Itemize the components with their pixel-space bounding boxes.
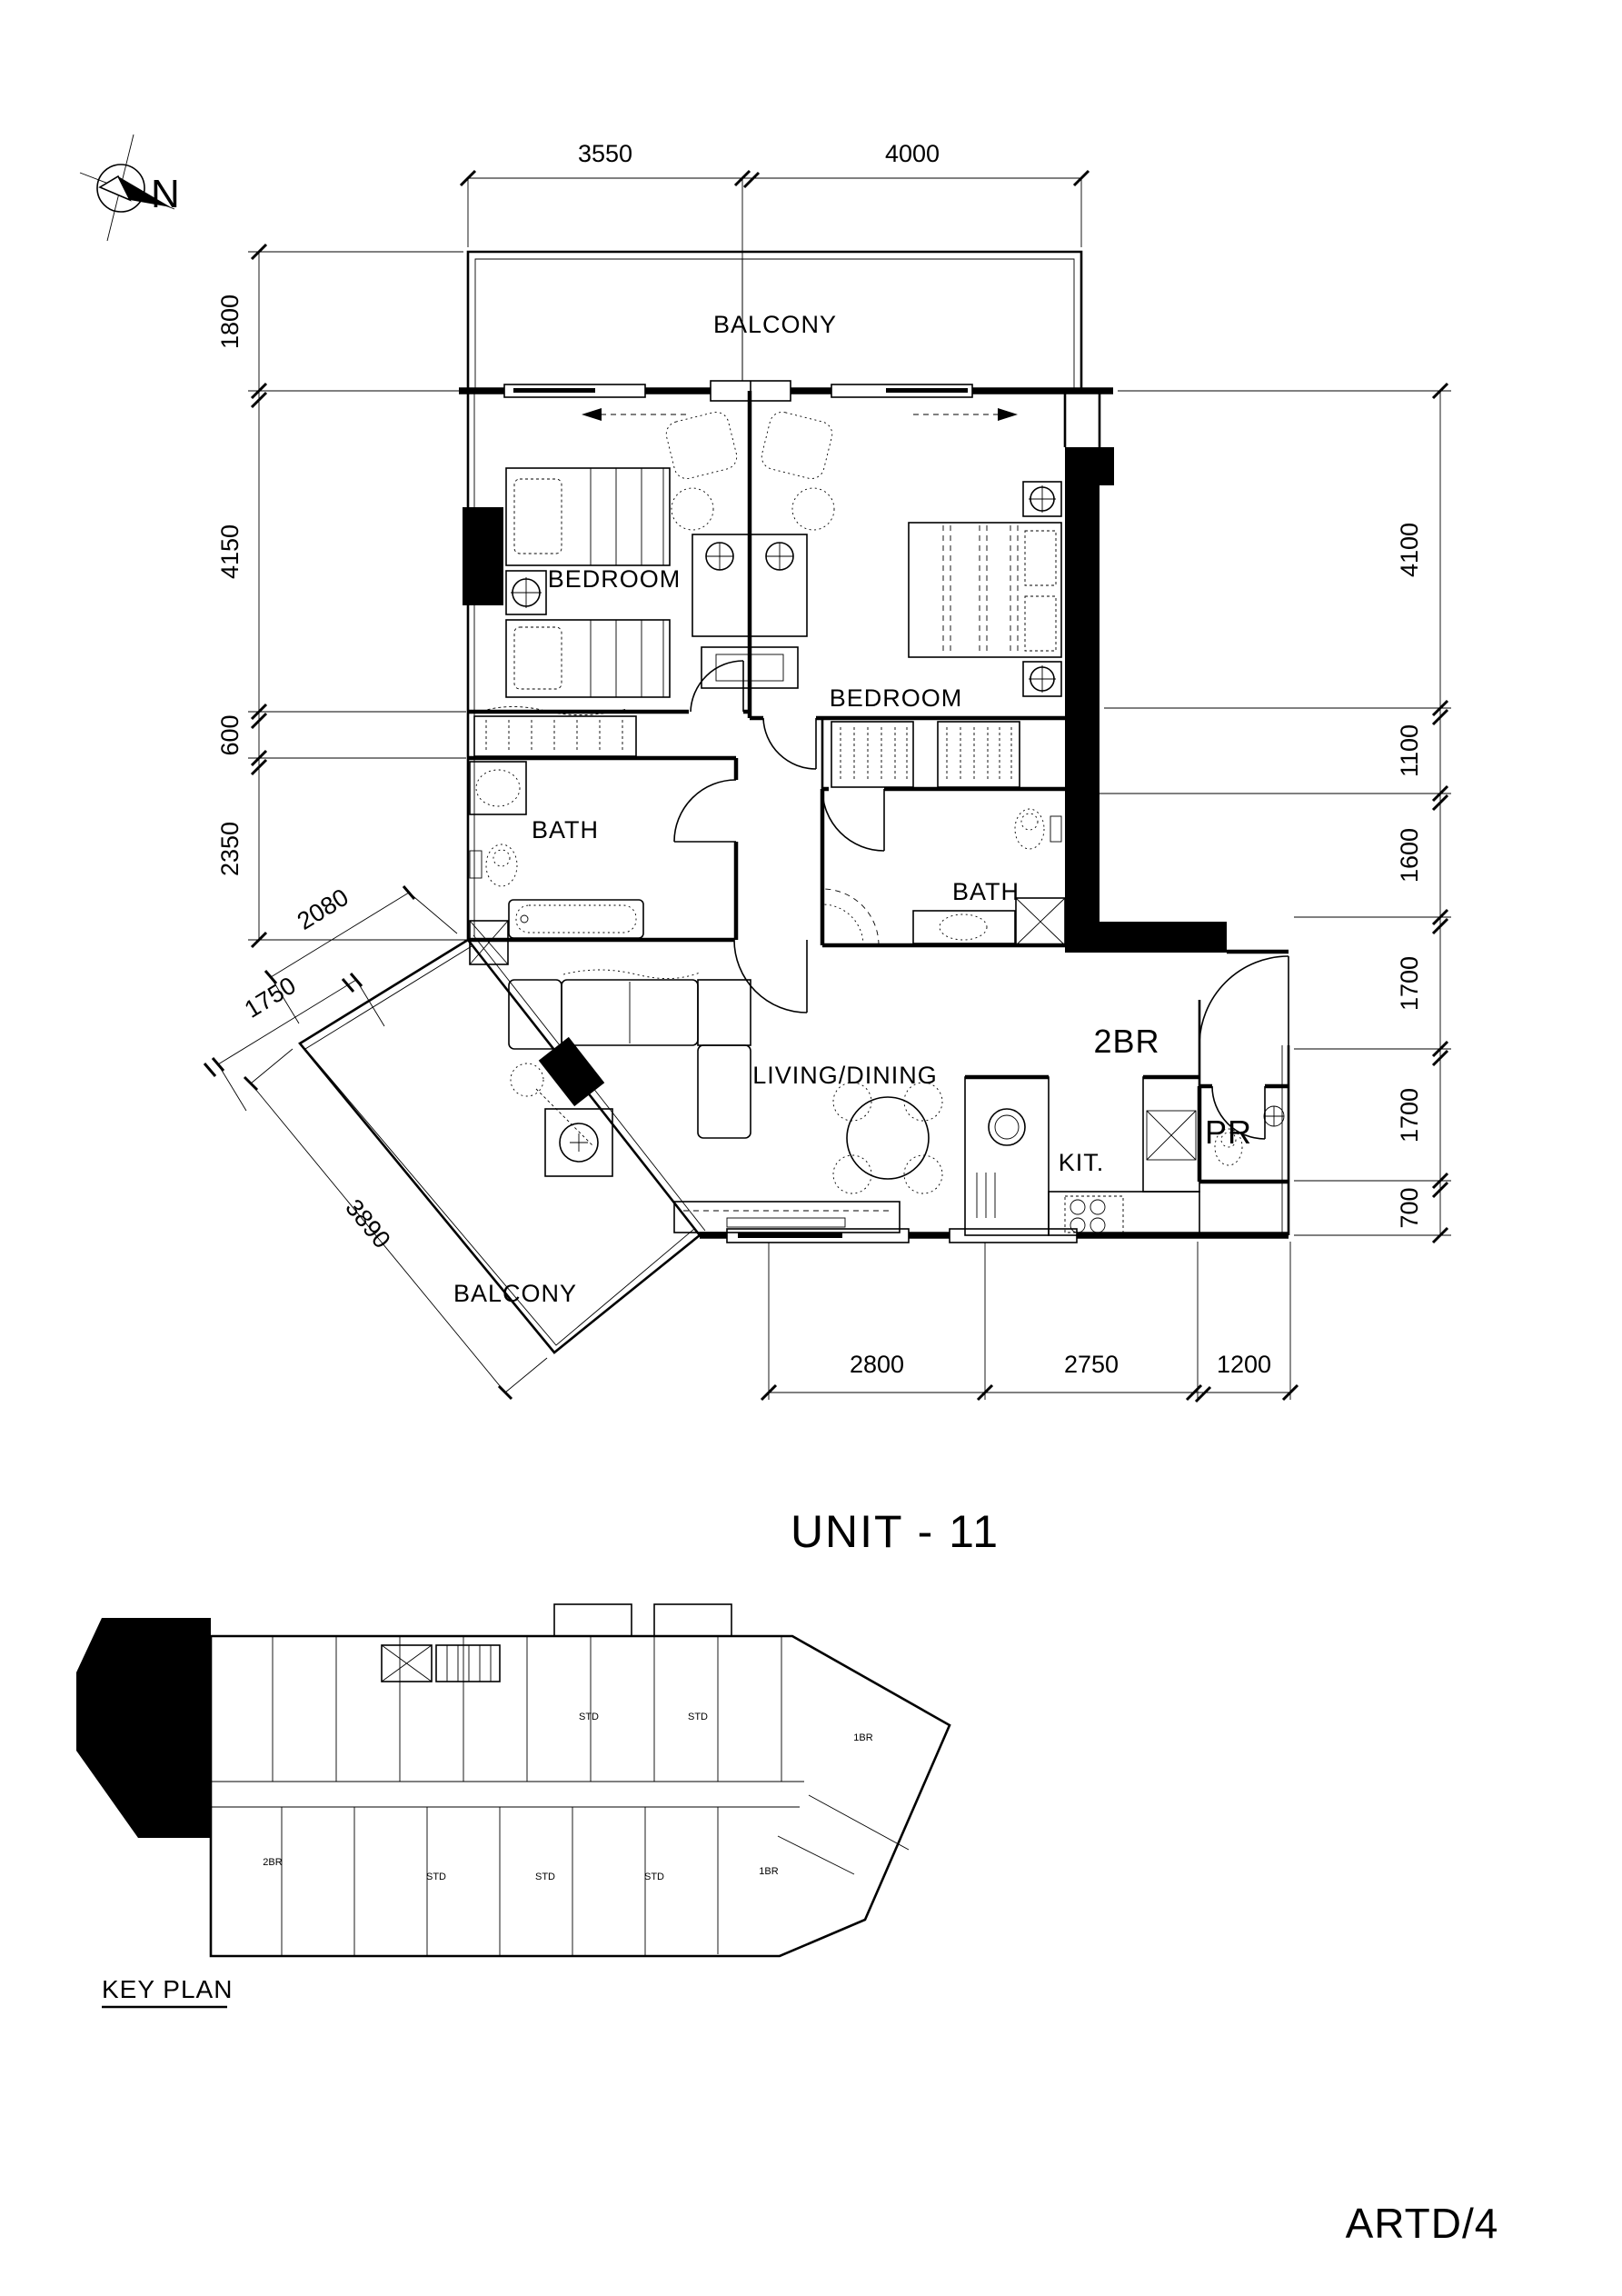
key-plan-unit-label: STD xyxy=(688,1712,708,1722)
bedroom-right-furniture xyxy=(909,482,1061,696)
key-plan-unit-label: 1BR xyxy=(759,1866,778,1877)
key-plan-unit-label: 2BR xyxy=(263,1857,282,1868)
dim-diag-1750: 1750 xyxy=(240,972,301,1023)
dim-top-3550: 3550 xyxy=(578,140,632,167)
dim-right-700: 700 xyxy=(1396,1187,1423,1228)
shear-wall-east xyxy=(1065,391,1227,953)
key-plan-unit-label: STD xyxy=(535,1872,555,1882)
room-label-bedroom-right: BEDROOM xyxy=(830,684,963,712)
room-label-balcony-top: BALCONY xyxy=(713,311,837,338)
key-plan-title: KEY PLAN xyxy=(102,1975,233,2003)
room-label-balcony-bottom: BALCONY xyxy=(453,1280,577,1307)
room-label-kitchen: KIT. xyxy=(1059,1149,1105,1176)
key-plan-unit-label: STD xyxy=(426,1872,446,1882)
dim-left-2350: 2350 xyxy=(216,822,244,876)
bath-right-fixtures xyxy=(822,809,1061,945)
dim-right-1600: 1600 xyxy=(1396,828,1423,883)
dimension-top: 3550 4000 xyxy=(461,140,1089,389)
dim-right-1700b: 1700 xyxy=(1396,1088,1423,1143)
dim-bottom-2750: 2750 xyxy=(1064,1351,1119,1378)
dim-bottom-2800: 2800 xyxy=(850,1351,904,1378)
key-plan-unit-label: STD xyxy=(579,1712,599,1722)
dimension-diagonal-3890: 3890 xyxy=(244,1049,547,1399)
north-label: N xyxy=(151,172,180,216)
key-plan-unit-label: 1BR xyxy=(853,1732,872,1743)
shear-wall-west xyxy=(463,507,503,605)
dim-right-1700a: 1700 xyxy=(1396,956,1423,1011)
bath-left-fixtures xyxy=(470,762,643,938)
dimension-right: 4100 1100 1600 1700 1700 700 xyxy=(1072,384,1451,1243)
room-label-powder-room: PR xyxy=(1205,1113,1252,1151)
room-label-bath-left: BATH xyxy=(532,816,599,844)
entry-door-swing xyxy=(1199,956,1289,1045)
dim-left-4150: 4150 xyxy=(216,524,244,579)
sliding-door-arrow-right-icon xyxy=(913,408,1018,421)
key-plan-unit-label: STD xyxy=(644,1872,664,1882)
floor-plan-sheet: N 3550 4000 1800 4150 600 2350 4100 1100… xyxy=(0,0,1622,2296)
room-label-bedroom-left: BEDROOM xyxy=(548,565,682,593)
dim-right-1100: 1100 xyxy=(1396,724,1423,777)
key-plan-highlighted-unit xyxy=(76,1618,211,1838)
north-arrow-icon: N xyxy=(80,135,180,241)
wardrobes-furniture xyxy=(831,722,1020,787)
shaft-icon xyxy=(470,898,1065,964)
dim-diag-2080: 2080 xyxy=(293,883,353,935)
room-label-living-dining: LIVING/DINING xyxy=(752,1062,938,1089)
sheet-code: ARTD/4 xyxy=(1346,2200,1499,2247)
dim-left-600: 600 xyxy=(216,714,244,755)
key-plan: STD STD 1BR 2BR STD STD STD 1BR xyxy=(76,1604,950,1956)
dim-diag-3890: 3890 xyxy=(340,1194,395,1253)
dim-right-4100: 4100 xyxy=(1396,523,1423,577)
dim-top-4000: 4000 xyxy=(885,140,940,167)
room-label-unit-type: 2BR xyxy=(1093,1023,1159,1060)
dim-left-1800: 1800 xyxy=(216,294,244,349)
room-label-bath-right: BATH xyxy=(952,878,1020,905)
dimension-left: 1800 4150 600 2350 xyxy=(216,245,466,947)
unit-11-floor-plan-drawing: N 3550 4000 1800 4150 600 2350 4100 1100… xyxy=(0,0,1622,2296)
dimension-bottom: 2800 2750 1200 xyxy=(761,1242,1298,1402)
dimension-diagonal-1750: 1750 xyxy=(204,972,384,1111)
north-wall xyxy=(459,381,1113,401)
plan-walls xyxy=(300,252,1289,1353)
dim-bottom-1200: 1200 xyxy=(1217,1351,1271,1378)
dimension-diagonal-2080: 2080 xyxy=(265,883,457,1023)
drawing-title: UNIT - 11 xyxy=(791,1506,1000,1557)
sliding-door-arrow-left-icon xyxy=(582,408,686,421)
